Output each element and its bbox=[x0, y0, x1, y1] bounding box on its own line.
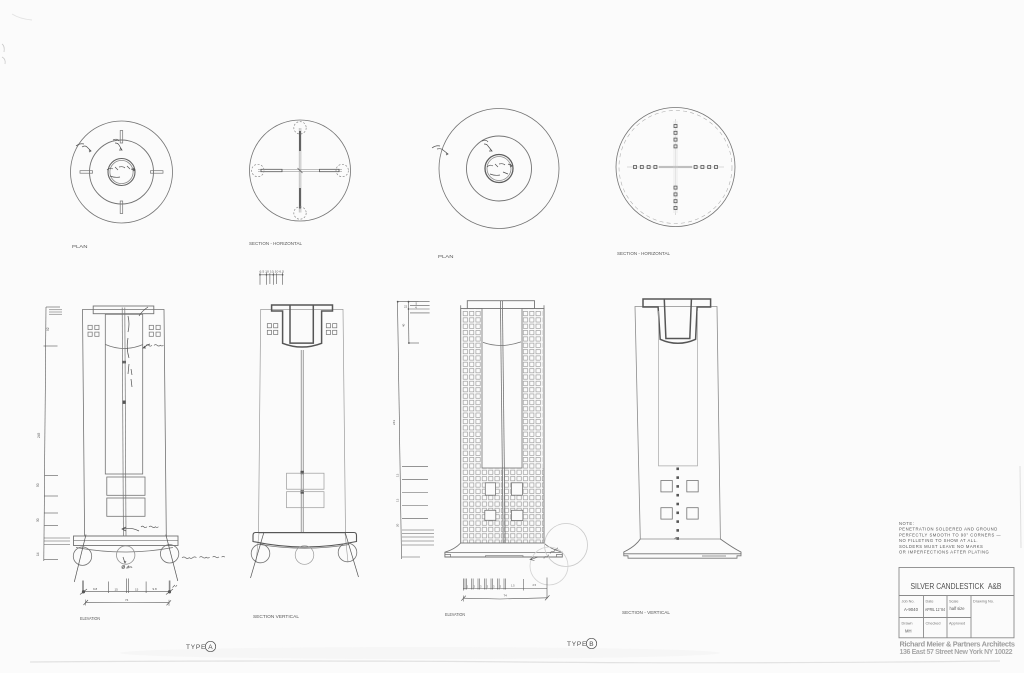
svg-text:136 East 57 Street New York NY: 136 East 57 Street New York NY 10022 bbox=[900, 649, 1013, 656]
svg-text:SOLDERS MUST LEAVE NO MARKS: SOLDERS MUST LEAVE NO MARKS bbox=[899, 544, 983, 549]
svg-text:3: 3 bbox=[493, 585, 495, 589]
svg-text:Richard Meier & Partners Archi: Richard Meier & Partners Architects bbox=[900, 640, 1016, 649]
svg-text:TYPE: TYPE bbox=[567, 641, 587, 648]
svg-text:15: 15 bbox=[135, 588, 139, 592]
svg-text:Date: Date bbox=[926, 600, 934, 604]
svg-text:3: 3 bbox=[500, 585, 502, 589]
svg-text:22: 22 bbox=[404, 305, 408, 309]
svg-text:30: 30 bbox=[36, 518, 40, 522]
svg-text:40: 40 bbox=[402, 323, 406, 327]
svg-text:Drawing No.: Drawing No. bbox=[973, 600, 994, 604]
svg-text:SECTION - HORIZONTAL: SECTION - HORIZONTAL bbox=[249, 241, 303, 246]
svg-text:SECTION - VERTICAL: SECTION - VERTICAL bbox=[622, 610, 671, 615]
svg-text:PLAN: PLAN bbox=[438, 254, 454, 259]
svg-text:PERFECTLY SMOOTH TO 90° CORNER: PERFECTLY SMOOTH TO 90° CORNERS — bbox=[899, 532, 1001, 537]
svg-text:3: 3 bbox=[474, 585, 476, 589]
svg-text:13: 13 bbox=[396, 473, 400, 477]
svg-text:50: 50 bbox=[36, 483, 40, 487]
svg-text:245: 245 bbox=[37, 432, 41, 438]
svg-text:OR IMPERFECTIONS AFTER PLATING: OR IMPERFECTIONS AFTER PLATING bbox=[899, 550, 989, 555]
svg-text:PENETRATION SOLDERED AND GROUN: PENETRATION SOLDERED AND GROUND bbox=[899, 527, 998, 532]
svg-text:1.5: 1.5 bbox=[511, 584, 515, 588]
svg-text:9.8: 9.8 bbox=[153, 587, 158, 591]
svg-text:Checked: Checked bbox=[926, 622, 941, 626]
svg-text:ELEVATION: ELEVATION bbox=[445, 612, 465, 617]
svg-text:15: 15 bbox=[115, 588, 119, 592]
svg-text:APRIL 12 '84: APRIL 12 '84 bbox=[925, 607, 946, 612]
svg-text:3: 3 bbox=[487, 585, 489, 589]
svg-text:2.5: 2.5 bbox=[533, 583, 537, 587]
svg-text:A: A bbox=[208, 644, 213, 651]
svg-text:13: 13 bbox=[396, 498, 400, 502]
svg-text:3: 3 bbox=[480, 585, 482, 589]
svg-text:6.5 10 10 10 6.5: 6.5 10 10 10 6.5 bbox=[260, 269, 285, 273]
svg-text:9.8: 9.8 bbox=[93, 587, 98, 591]
svg-text:243: 243 bbox=[392, 420, 396, 425]
svg-text:SECTION - HORIZONTAL: SECTION - HORIZONTAL bbox=[617, 251, 671, 256]
svg-text:NOTE:: NOTE: bbox=[899, 521, 914, 526]
svg-text:B: B bbox=[589, 641, 594, 648]
svg-text:Scale: Scale bbox=[949, 600, 959, 604]
svg-text:2: 2 bbox=[467, 585, 469, 589]
svg-text:ELEVATION: ELEVATION bbox=[80, 616, 100, 621]
svg-text:14: 14 bbox=[36, 552, 40, 556]
svg-text:92: 92 bbox=[46, 327, 50, 331]
svg-text:SECTION VERTICAL: SECTION VERTICAL bbox=[253, 614, 300, 619]
svg-text:Job No.: Job No. bbox=[902, 600, 915, 604]
svg-text:Approved: Approved bbox=[949, 622, 965, 626]
svg-text:NO FILLETING TO SHOW AT ALL.: NO FILLETING TO SHOW AT ALL. bbox=[899, 538, 978, 543]
svg-text:MH: MH bbox=[905, 629, 912, 634]
svg-text:A-9040: A-9040 bbox=[904, 607, 919, 612]
svg-text:Drawn: Drawn bbox=[902, 622, 913, 626]
svg-text:SILVER CANDLESTICK A&B: SILVER CANDLESTICK A&B bbox=[911, 582, 1002, 591]
svg-text:half size: half size bbox=[950, 606, 966, 611]
svg-text:PLAN: PLAN bbox=[72, 244, 88, 249]
svg-text:20: 20 bbox=[396, 523, 400, 527]
svg-text:74: 74 bbox=[504, 593, 508, 597]
svg-text:74: 74 bbox=[125, 598, 129, 602]
svg-text:TYPE: TYPE bbox=[186, 644, 206, 651]
